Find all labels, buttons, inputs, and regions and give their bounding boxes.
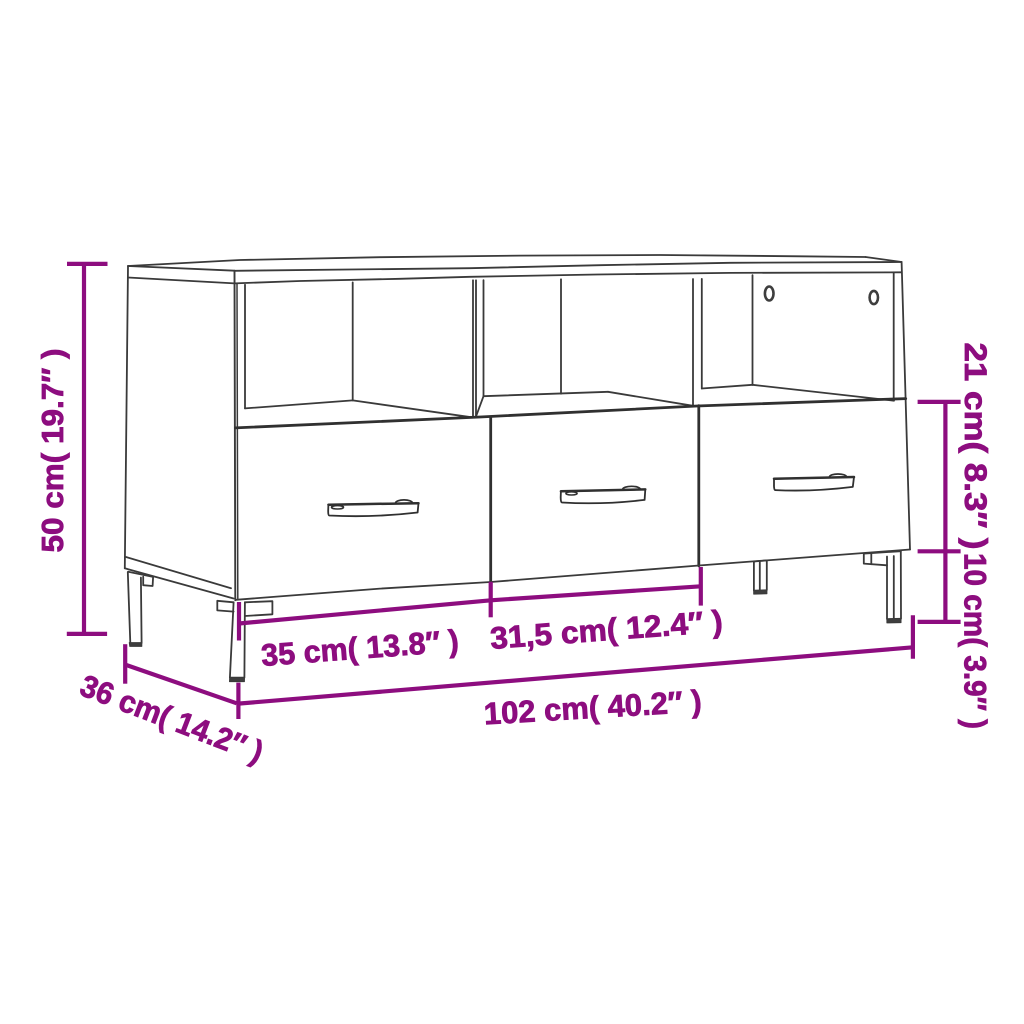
svg-text:50 cm( 19.7″ ): 50 cm( 19.7″ ) <box>35 349 70 553</box>
svg-text:21 cm( 8.3″ ): 21 cm( 8.3″ ) <box>958 343 994 550</box>
svg-text:10 cm( 3.9″ ): 10 cm( 3.9″ ) <box>958 553 994 729</box>
